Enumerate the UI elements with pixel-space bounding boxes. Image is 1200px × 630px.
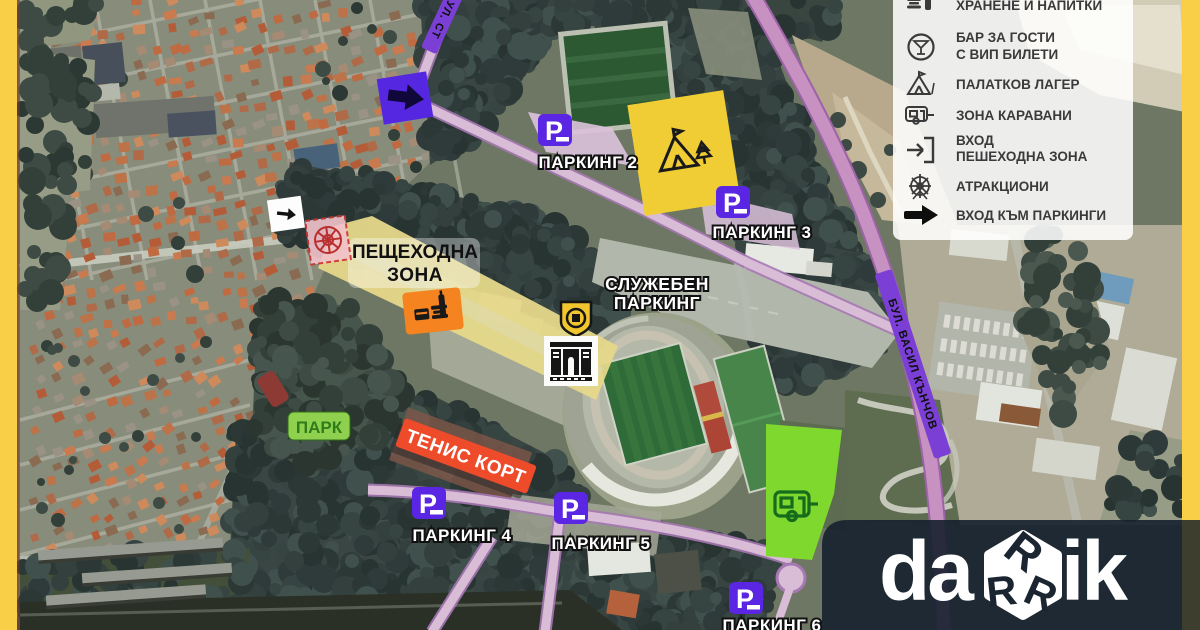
svg-text:ПЕШЕХОДНА ЗОНА: ПЕШЕХОДНА ЗОНА xyxy=(956,149,1088,164)
svg-text:ЗОНА: ЗОНА xyxy=(387,265,443,286)
svg-text:БАР ЗА ГОСТИ: БАР ЗА ГОСТИ xyxy=(956,30,1055,45)
svg-text:ПЕЩЕХОДНА: ПЕЩЕХОДНА xyxy=(352,242,478,263)
svg-text:ХРАНЕНЕ И НАПИТКИ: ХРАНЕНЕ И НАПИТКИ xyxy=(956,0,1102,13)
svg-text:ВХОД: ВХОД xyxy=(956,133,994,148)
svg-text:СЛУЖЕБЕН: СЛУЖЕБЕН xyxy=(605,274,709,294)
svg-text:АТРАКЦИОНИ: АТРАКЦИОНИ xyxy=(956,179,1049,194)
svg-text:ПАРКИНГ: ПАРКИНГ xyxy=(614,293,700,313)
svg-text:ПАЛАТКОВ ЛАГЕР: ПАЛАТКОВ ЛАГЕР xyxy=(956,77,1080,92)
svg-text:С ВИП БИЛЕТИ: С ВИП БИЛЕТИ xyxy=(956,47,1058,62)
svg-text:ПАРКИНГ 5: ПАРКИНГ 5 xyxy=(551,534,650,553)
svg-text:ЗОНА КАРАВАНИ: ЗОНА КАРАВАНИ xyxy=(956,108,1072,123)
svg-text:ПАРКИНГ 6: ПАРКИНГ 6 xyxy=(722,616,821,630)
svg-text:ВХОД КЪМ ПАРКИНГИ: ВХОД КЪМ ПАРКИНГИ xyxy=(956,208,1106,223)
svg-text:ik: ik xyxy=(1061,524,1128,618)
svg-text:ПАРКИНГ 2: ПАРКИНГ 2 xyxy=(538,153,637,172)
svg-text:R: R xyxy=(984,566,1019,616)
svg-text:ПАРК: ПАРК xyxy=(296,418,343,437)
svg-text:da: da xyxy=(879,524,975,618)
svg-text:ПАРКИНГ 3: ПАРКИНГ 3 xyxy=(712,223,811,242)
svg-text:ПАРКИНГ 4: ПАРКИНГ 4 xyxy=(412,526,511,545)
